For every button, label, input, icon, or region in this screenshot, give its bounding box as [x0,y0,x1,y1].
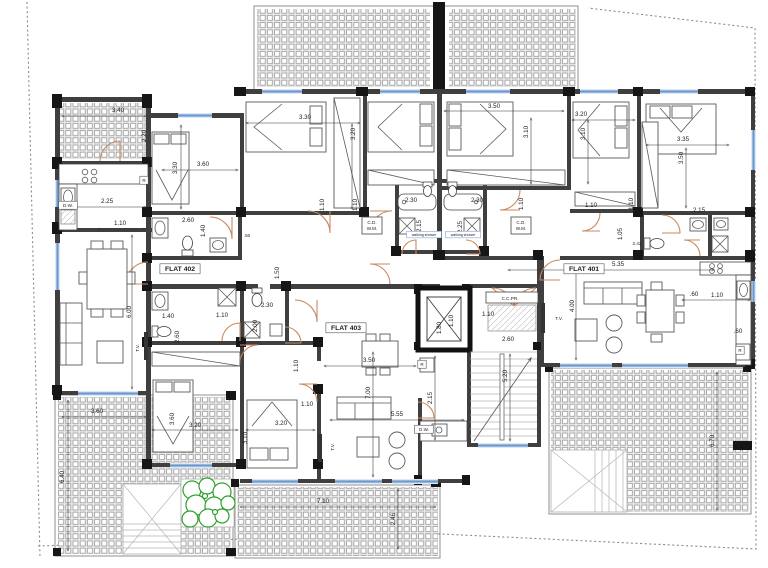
dimension-label: 3.50 [488,103,501,110]
armchair [606,337,622,353]
dimension-label: 2.30 [261,302,274,309]
dimension-label: 4.00 [569,299,576,312]
dimension-label: 5.55 [391,411,404,418]
dimension-label: 3.40 [112,107,125,114]
dimension-label: 1.10 [628,197,635,210]
dimension-label: 3.20 [189,422,202,429]
dimension-label: 2.25 [101,198,114,205]
exterior-stair-area [123,484,181,554]
dimension-label: 5.35 [612,261,625,268]
dimension-label: C.D. [367,220,376,225]
dimension-label: walking shower [451,233,476,237]
flat-label: FLAT 402 [165,266,195,273]
dimension-label: W.M. [516,226,526,231]
dimension-label: 6.70 [709,434,716,447]
planter [181,478,235,527]
dimension-label: 2.46 [390,512,397,525]
dimension-label: 1.05 [617,227,624,240]
dimension-label: 2.20 [141,129,148,142]
terraces-layer [53,2,752,558]
dimension-label: 3.20 [575,111,588,118]
dimension-label: 2.30 [471,197,484,204]
dimension-label: walking shower [412,233,437,237]
window [560,363,612,368]
bathroom-fixtures [712,218,728,252]
top-terrace-right [449,9,576,87]
dimension-label: T.V. [555,316,563,321]
window [478,443,528,448]
dining-table [362,334,398,375]
dimension-label: .60 [734,328,743,335]
dimension-label: 6.40 [59,470,66,483]
window [170,463,212,468]
window [622,363,688,368]
armchair [389,453,405,469]
roof-below-area [551,450,627,512]
dimension-label: 1.10 [711,292,724,299]
window [335,479,382,484]
armchair [606,315,622,331]
tv [318,434,322,462]
dimension-label: 3.20 [350,127,357,140]
dimension-label: 3.35 [677,136,690,143]
sofa [60,303,82,365]
window [252,479,298,484]
top-terrace-left [257,9,430,87]
flat-label: FLAT 401 [569,266,599,273]
coffee-table [575,319,597,341]
dimension-label: 1.10 [352,198,359,211]
coffee-table [357,437,379,457]
dimension-label: C.D. [516,220,525,225]
dimension-label: 3.10 [242,431,249,444]
bathroom-fixtures [244,288,282,338]
dimension-label: 7.10 [317,498,330,505]
dimension-label: 1.10 [319,198,326,211]
dimension-label: 3.30 [299,114,312,121]
tv [144,332,148,360]
window [392,479,438,484]
armchair [389,432,405,448]
dining-table [637,282,684,342]
wardrobe [334,98,360,208]
dimension-label: 1.10 [482,311,495,318]
dimension-label: 2.60 [502,336,515,343]
dimension-label: 2.00 [252,319,259,332]
window [751,130,756,170]
window [580,89,618,94]
dimension-label: D.W. [419,427,429,432]
wardrobe [152,352,240,366]
dimension-label: 3.60 [197,161,210,168]
dimension-label: .60 [690,291,699,298]
dimension-label: 1.80 [436,321,443,334]
coffee-table [97,341,123,363]
dimension-label: C.C.PR. [502,296,519,301]
dimension-label: 3.10 [523,125,530,138]
terrace-divider-wall [433,2,445,91]
elevator [418,288,470,350]
dimension-label: 5.20 [502,369,509,382]
dimension-label: 6.00 [126,305,133,318]
dimension-label: 1.50 [274,266,281,279]
dimension-label: T.V. [135,344,140,352]
dimension-label: 1.10 [293,359,300,372]
dimension-label: 3.50 [363,357,376,364]
tv [541,303,545,333]
dimension-label: 1.40 [200,224,207,237]
dimension-label: 3.20 [275,420,288,427]
wardrobe [642,122,658,208]
dimension-label: 1.10 [301,401,314,408]
window [262,89,302,94]
kitchen-counter [59,164,148,230]
dimension-label: 1.10 [114,220,127,227]
bed [368,102,434,152]
window [178,113,212,118]
plants [182,478,235,527]
bed [152,132,189,204]
dimension-label: 2.60 [174,330,181,343]
dimension-label: 2.15 [416,219,423,232]
bed [447,102,513,156]
dimension-label: 3.60 [169,412,176,425]
dimension-label: 1.40 [162,313,175,320]
sofa [337,397,391,419]
dining-table [79,241,135,317]
dimension-label: 3.10 [580,127,587,140]
dimension-label: 1.10 [518,197,525,210]
wardrobe [447,170,565,185]
dimension-label: 3.30 [172,161,179,174]
flat-label: FLAT 403 [331,325,361,332]
dimension-label: 1.10 [448,314,455,327]
dimension-label: D.W. [63,203,73,208]
window [466,89,510,94]
dimension-label: 2.15 [693,207,706,214]
dimension-label: 2.15 [427,391,434,404]
window [78,391,138,396]
staircase [470,352,537,441]
window [380,89,420,94]
core-layer [418,288,538,441]
window [55,243,60,290]
bed [246,102,326,152]
window [660,89,698,94]
dimension-label: 3.50 [678,151,685,164]
dimension-label: 3.60 [91,408,104,415]
dimension-label: 2.30 [405,197,418,204]
dimension-label: 2.60 [182,217,195,224]
bed [247,400,297,468]
dimension-label: T.V. [330,443,335,451]
dimension-label: 7.00 [365,386,372,399]
dimension-label: 2.43 [633,241,642,246]
terrace-bottom-center [237,487,438,556]
dimension-label: .50 [244,233,251,238]
dimension-label: 1.10 [585,202,598,209]
window [751,281,756,302]
dimension-label: 1.10 [216,312,229,319]
dimension-label: W.M. [367,226,377,231]
floor-plan-drawing: 3.402.202.251.106.00T.V.3.303.602.601.40… [0,0,768,568]
floor-plan-page: 3.402.202.251.106.00T.V.3.303.602.601.40… [0,0,768,568]
sofa [584,282,642,304]
